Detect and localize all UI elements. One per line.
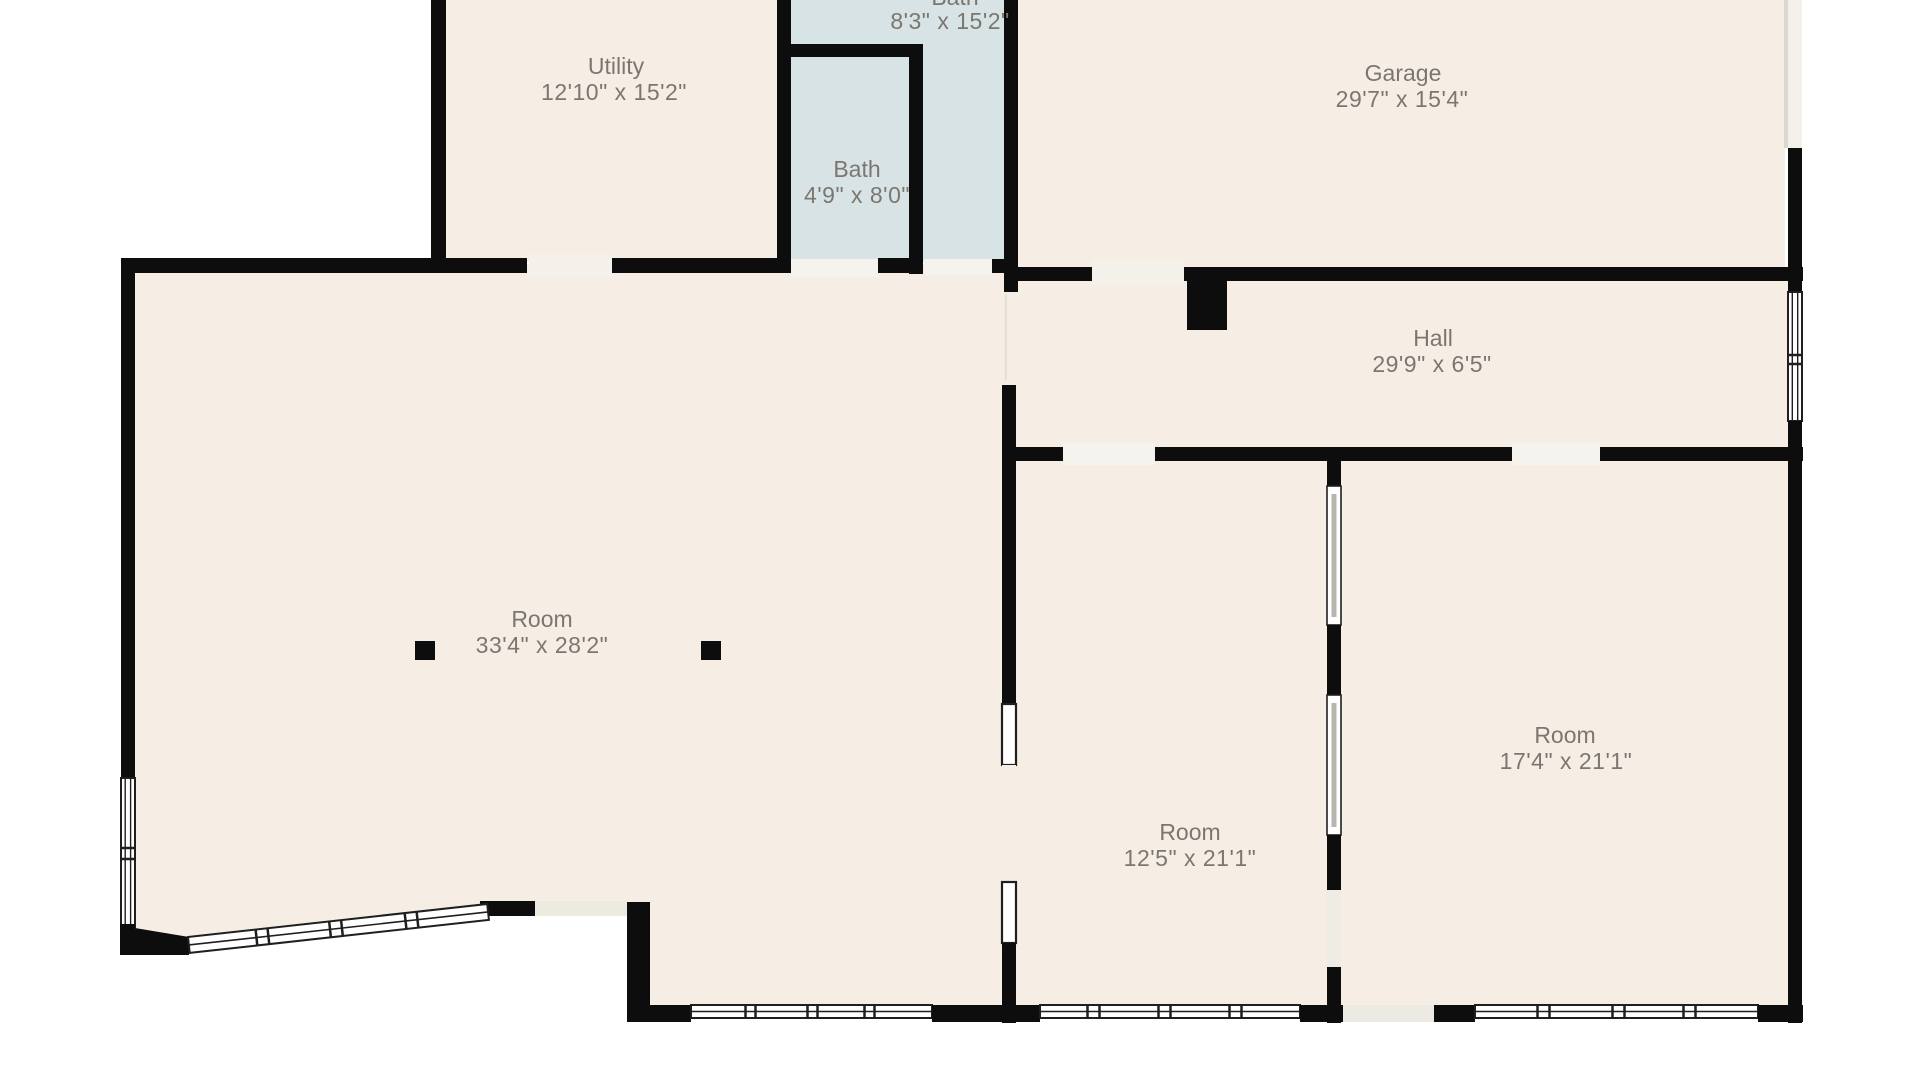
svg-text:Room: Room [1159, 819, 1220, 845]
svg-text:33'4" x 28'2": 33'4" x 28'2" [476, 632, 609, 658]
svg-text:Hall: Hall [1413, 325, 1453, 351]
svg-text:8'3" x 15'2": 8'3" x 15'2" [890, 8, 1009, 34]
svg-text:Garage: Garage [1365, 60, 1442, 86]
svg-text:12'5" x 21'1": 12'5" x 21'1" [1124, 845, 1257, 871]
svg-text:12'10" x 15'2": 12'10" x 15'2" [541, 79, 687, 105]
svg-text:Room: Room [1534, 722, 1595, 748]
svg-text:17'4" x 21'1": 17'4" x 21'1" [1500, 748, 1633, 774]
svg-text:Utility: Utility [588, 53, 645, 79]
svg-text:4'9" x 8'0": 4'9" x 8'0" [804, 182, 910, 208]
svg-text:29'7" x 15'4": 29'7" x 15'4" [1336, 86, 1469, 112]
svg-text:Room: Room [511, 606, 572, 632]
svg-text:29'9" x 6'5": 29'9" x 6'5" [1372, 351, 1491, 377]
svg-text:Bath: Bath [833, 156, 880, 182]
